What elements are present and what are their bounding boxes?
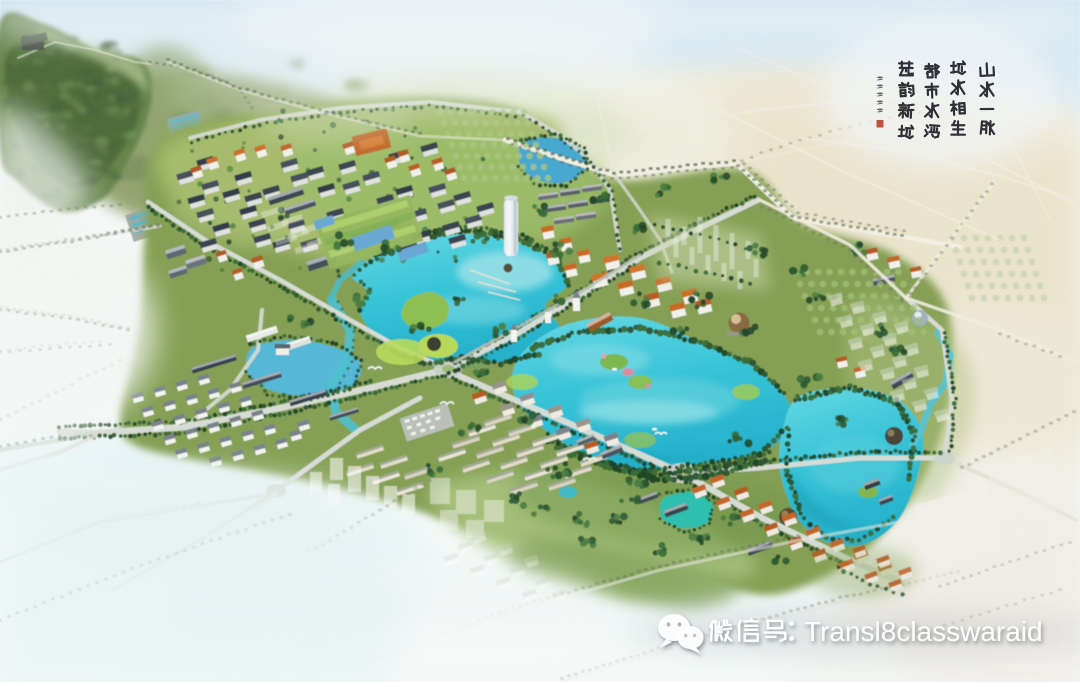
svg-text:Transl8classwaraid: Transl8classwaraid xyxy=(804,616,1043,647)
